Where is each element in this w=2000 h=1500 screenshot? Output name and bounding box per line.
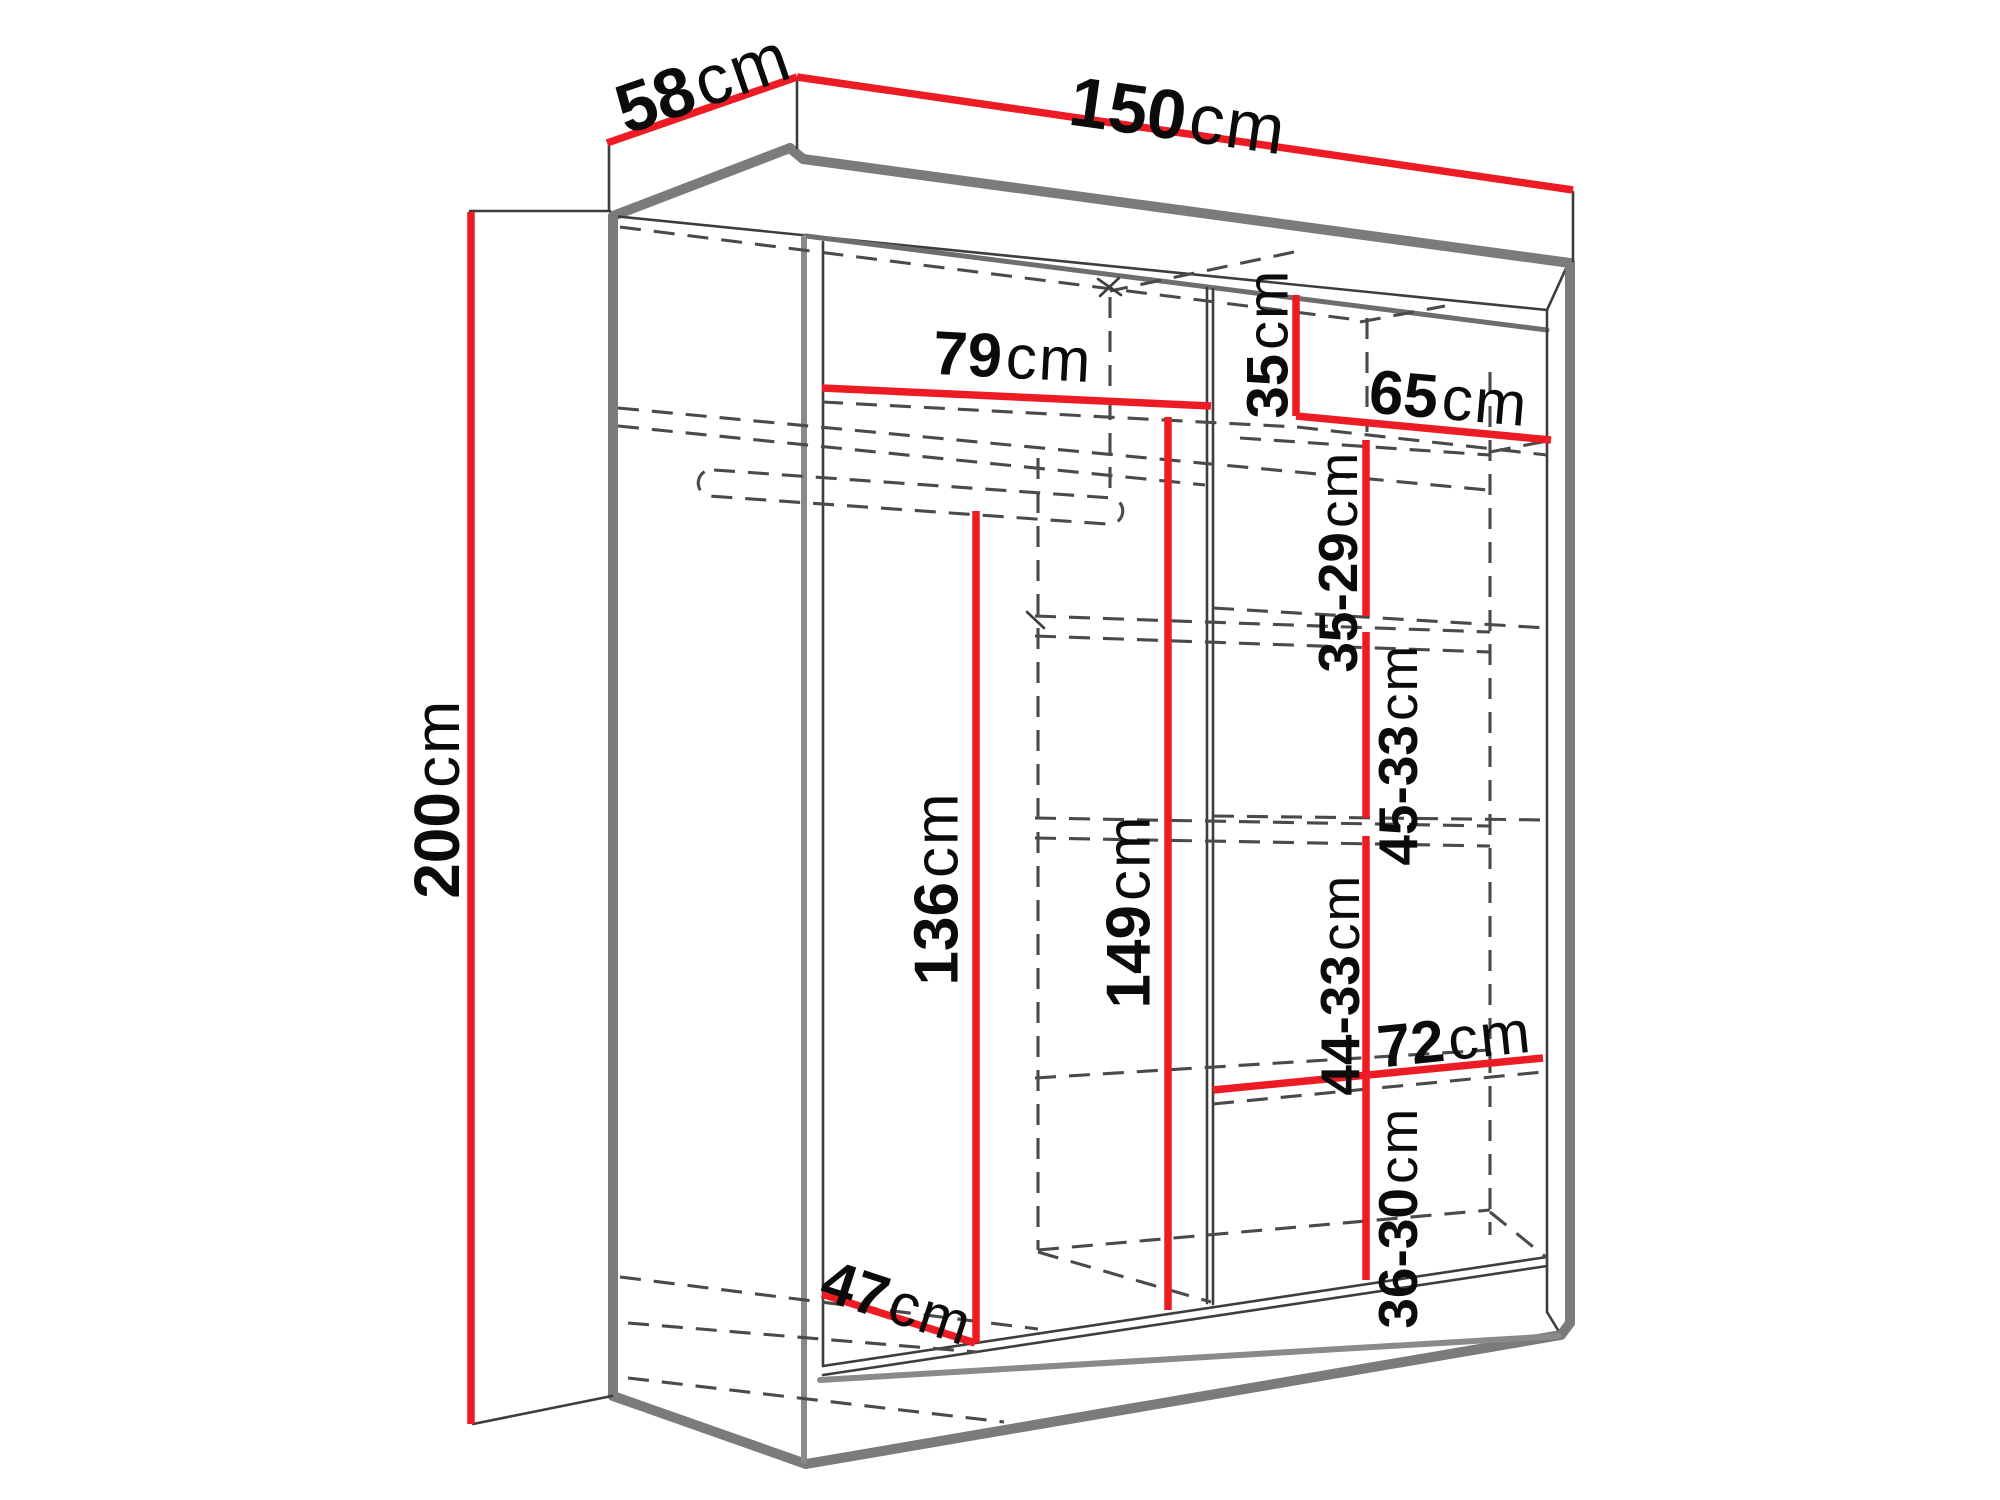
label-height: 200 cm	[401, 699, 473, 899]
label-hanging-height-unit: cm	[903, 791, 972, 878]
label-shelf-gap-3-unit: cm	[1309, 874, 1371, 951]
floor-depth-edge-divider	[1038, 1252, 1211, 1302]
label-shelf-gap-1-unit: cm	[1307, 451, 1369, 528]
label-left-section-width: 79 cm	[931, 319, 1094, 396]
diagram-canvas: 58 cm 150 cm 200 cm 79 cm 35 cm 65 cm 35…	[0, 0, 2000, 1500]
label-shelf-width-value: 72	[1374, 1007, 1447, 1081]
base-left-diagonal	[613, 1396, 806, 1464]
label-interior-height-unit: cm	[1095, 814, 1164, 901]
plinth-hidden-edge	[628, 1378, 1004, 1422]
label-interior-height-value: 149	[1095, 905, 1164, 1008]
label-width-value: 150	[1065, 62, 1192, 155]
hanging-rod	[698, 470, 1122, 524]
label-top-shelf-gap: 35 cm	[1236, 269, 1301, 419]
label-interior-height: 149 cm	[1095, 814, 1164, 1008]
label-shelf-gap-2: 45-33 cm	[1367, 644, 1429, 866]
label-shelf-gap-4: 36-30 cm	[1367, 1107, 1429, 1329]
crown-right-join	[1547, 264, 1568, 310]
label-shelf-width-unit: cm	[1444, 998, 1535, 1073]
crown-front-top-edge	[613, 216, 1547, 310]
label-right-section-width: 65 cm	[1366, 357, 1531, 440]
label-shelf-gap-2-unit: cm	[1367, 644, 1429, 721]
label-height-value: 200	[401, 792, 473, 899]
opening-top-edge	[806, 236, 1547, 330]
label-depth: 58 cm	[606, 17, 801, 149]
top-shelf-bottom-edge	[822, 402, 1297, 427]
shelf-b-back-edge-1	[1035, 616, 1490, 632]
label-left-section-width-unit: cm	[1004, 323, 1094, 396]
label-shelf-gap-2-value: 45-33	[1367, 725, 1429, 866]
shelf-b-front-edge	[1213, 608, 1547, 628]
ext-line-200-bottom	[473, 1396, 612, 1424]
floor-depth-edge-right	[1490, 1212, 1547, 1258]
tick-mark	[1027, 612, 1044, 628]
label-right-section-width-value: 65	[1366, 357, 1441, 432]
label-top-shelf-gap-unit: cm	[1236, 269, 1301, 350]
label-depth-unit: cm	[683, 17, 800, 122]
label-shelf-gap-4-value: 36-30	[1367, 1188, 1429, 1329]
label-shelf-gap-1: 35-29 cm	[1307, 451, 1369, 673]
top-shelf-back-edge-2	[618, 426, 1205, 485]
label-shelf-gap-3: 44-33 cm	[1309, 874, 1371, 1096]
label-shelf-gap-3-value: 44-33	[1309, 955, 1371, 1096]
wardrobe-dimension-diagram: 58 cm 150 cm 200 cm 79 cm 35 cm 65 cm 35…	[0, 0, 2000, 1500]
label-width: 150 cm	[1065, 62, 1292, 170]
crown-left-top-edge	[613, 148, 790, 216]
label-shelf-width: 72 cm	[1374, 998, 1535, 1081]
label-height-unit: cm	[401, 699, 473, 788]
label-left-section-width-value: 79	[931, 319, 1003, 392]
label-top-shelf-gap-value: 35	[1236, 354, 1301, 419]
label-shelf-gap-1-value: 35-29	[1307, 532, 1369, 673]
label-shelf-gap-4-unit: cm	[1367, 1107, 1429, 1184]
label-width-unit: cm	[1185, 79, 1292, 170]
label-right-section-width-unit: cm	[1439, 364, 1531, 440]
label-hanging-height-value: 136	[903, 882, 972, 985]
label-hanging-height: 136 cm	[903, 791, 972, 985]
